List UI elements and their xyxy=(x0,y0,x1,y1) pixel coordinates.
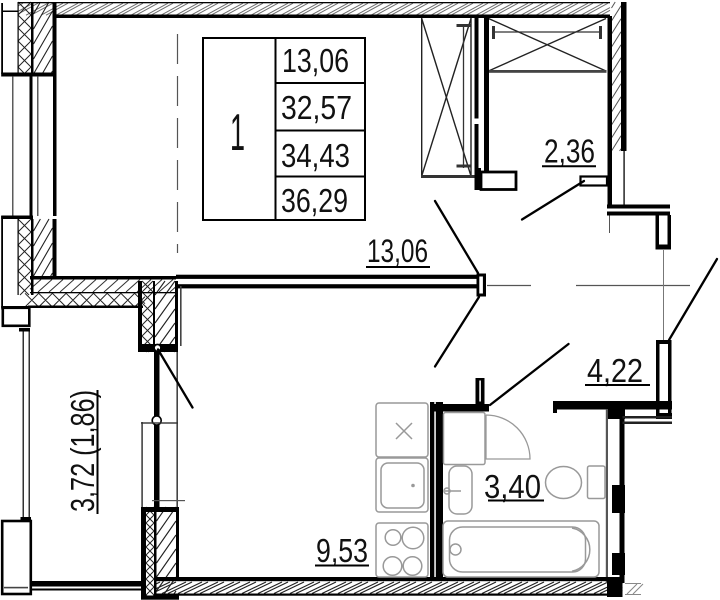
svg-text:13,06: 13,06 xyxy=(282,42,349,79)
svg-text:9,53: 9,53 xyxy=(316,532,368,569)
svg-text:1: 1 xyxy=(230,104,245,162)
svg-text:32,57: 32,57 xyxy=(281,89,352,126)
svg-text:13,06: 13,06 xyxy=(367,233,428,269)
svg-text:4,22: 4,22 xyxy=(587,352,643,389)
svg-text:36,29: 36,29 xyxy=(281,182,348,219)
svg-text:3,40: 3,40 xyxy=(484,468,541,505)
svg-text:2,36: 2,36 xyxy=(544,133,595,170)
svg-text:3,72 (1,86): 3,72 (1,86) xyxy=(64,390,101,512)
svg-text:34,43: 34,43 xyxy=(281,137,350,174)
